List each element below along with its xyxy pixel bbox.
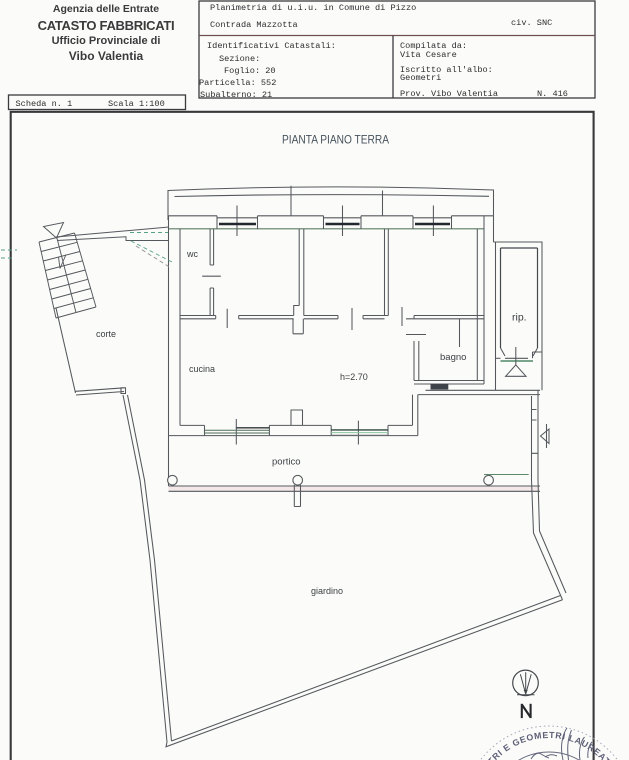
svg-text:METRI E GEOMETRI LAUREATI DI: METRI E GEOMETRI LAUREATI DI xyxy=(477,730,623,760)
svg-text:h=2.70: h=2.70 xyxy=(340,372,368,382)
svg-text:rip.: rip. xyxy=(512,312,527,324)
svg-text:wc: wc xyxy=(186,249,198,259)
svg-text:portico: portico xyxy=(272,457,301,468)
svg-text:PIANTA PIANO TERRA: PIANTA PIANO TERRA xyxy=(282,133,389,147)
svg-text:bagno: bagno xyxy=(440,352,466,363)
svg-text:corte: corte xyxy=(96,329,116,339)
svg-text:giardino: giardino xyxy=(311,586,343,596)
svg-text:cucina: cucina xyxy=(189,364,215,374)
